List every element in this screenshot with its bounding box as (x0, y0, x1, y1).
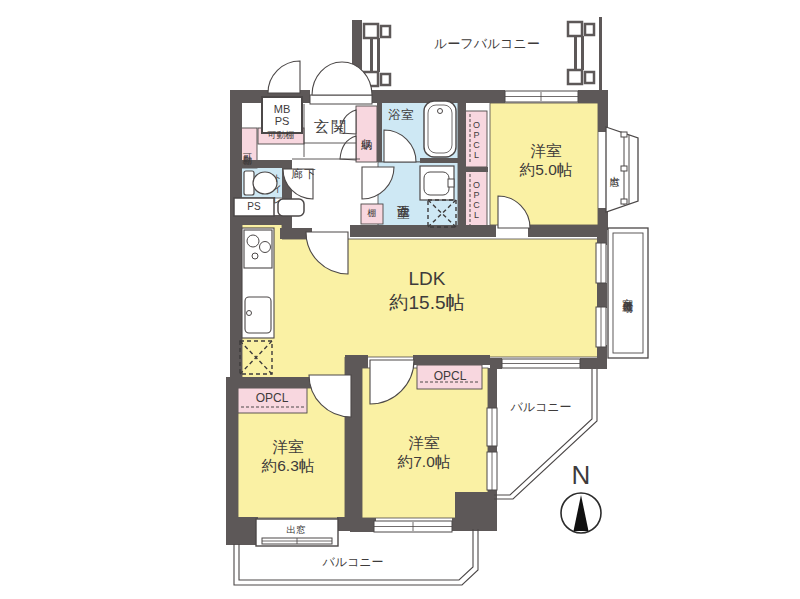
wall-stub-63 (350, 371, 362, 385)
wall-above-toilet (230, 160, 292, 168)
wall-balcony-top-b (580, 358, 607, 369)
wall-right-5a (598, 90, 608, 132)
bay-window-tick (621, 132, 627, 137)
washbasin-bowl (424, 172, 449, 195)
label-balcony-right: バルコニー (510, 400, 571, 415)
wall-top-63 (226, 377, 312, 388)
stove-burner (252, 253, 258, 259)
label-opcl-upper1: OPCL (472, 120, 481, 160)
label-ps: PS (247, 201, 260, 214)
label-entrance: 玄関 (314, 118, 348, 137)
wall-left-63 (226, 377, 238, 530)
label-opcl-63: OPCL (256, 391, 289, 406)
label-hallway: 廊下 (292, 167, 317, 181)
column-icon (585, 24, 594, 35)
label-bay-window-bottom: 出窓 (287, 524, 306, 536)
label-storage: 収納 (361, 130, 372, 132)
roof-columns (364, 22, 594, 86)
column-bar (370, 38, 373, 72)
wall-top-70b (413, 355, 490, 365)
label-mb-ps: MB PS (274, 103, 291, 127)
column-bar (574, 36, 577, 70)
label-bay-window-right: 出窓 (609, 168, 619, 170)
wall-balcony-top-a (490, 358, 502, 369)
label-balcony-bottom: バルコニー (322, 555, 383, 570)
bay-window-tick (621, 199, 627, 204)
wall-washroom-right (458, 100, 466, 228)
label-bedroom70: 洋室 約7.0帖 (398, 433, 451, 472)
basin-cabinet-box (278, 199, 304, 216)
wall-top-70a (345, 355, 368, 368)
label-opcl-upper2: OPCL (472, 180, 481, 220)
wall-bedroom5-btm-b (528, 225, 607, 237)
label-shelf: 棚 (368, 208, 377, 219)
stove-burner (260, 242, 271, 253)
wall-right-ldk-b (597, 283, 607, 308)
wall-storage-right (377, 100, 382, 162)
wall-bedroom5-btm-a (462, 225, 496, 237)
column-icon (381, 26, 390, 37)
floorplan: ルーフバルコニー MB PS 玄関 可動棚 可動棚 収納 浴室 トイレ PS 廊… (0, 0, 800, 599)
column-icon (568, 70, 582, 84)
label-toilet: トイレ (273, 167, 282, 201)
column-icon (381, 74, 390, 85)
bathtub-drain (438, 109, 443, 114)
wall-roof-right (599, 17, 602, 92)
closet-storage (356, 106, 377, 162)
wall-bath-washroom (420, 158, 458, 163)
wall-opcl-stub (465, 167, 488, 172)
door-entrance (312, 62, 372, 95)
column-icon (568, 22, 582, 36)
column-bar (377, 38, 380, 72)
stove-burner (247, 235, 259, 247)
door-storage-fold-2 (340, 136, 356, 160)
compass-icon (561, 493, 601, 533)
label-opcl-70: OPCL (434, 369, 467, 384)
label-movable-shelf-v: 可動棚 (243, 147, 252, 150)
label-movable-shelf-h: 可動棚 (268, 130, 295, 141)
wall-btm-70a (350, 518, 376, 532)
door-mbps (268, 61, 300, 93)
bay-window-tick (621, 166, 627, 171)
column-icon (364, 24, 378, 38)
label-outdoor-unit: 室外機置場 (623, 291, 634, 296)
label-compass-north: N (572, 459, 591, 492)
washbasin-faucet (448, 179, 454, 187)
column-icon (585, 72, 594, 83)
wall-corner-63 (226, 517, 258, 545)
wall-left-outer (230, 90, 242, 378)
label-bathroom: 浴室 (389, 108, 414, 124)
label-roof-balcony: ルーフバルコニー (434, 36, 540, 52)
window-entrance-threshold (310, 95, 372, 104)
column-bar (581, 36, 584, 70)
label-washroom: 洗面室 (397, 195, 410, 198)
sink-faucet (247, 311, 252, 316)
label-bedroom5: 洋室 約5.0帖 (520, 141, 573, 180)
label-bedroom63: 洋室 約6.3帖 (262, 437, 315, 476)
label-ldk: LDK 約15.5帖 (390, 267, 465, 315)
wall-btm-70b (452, 518, 497, 531)
